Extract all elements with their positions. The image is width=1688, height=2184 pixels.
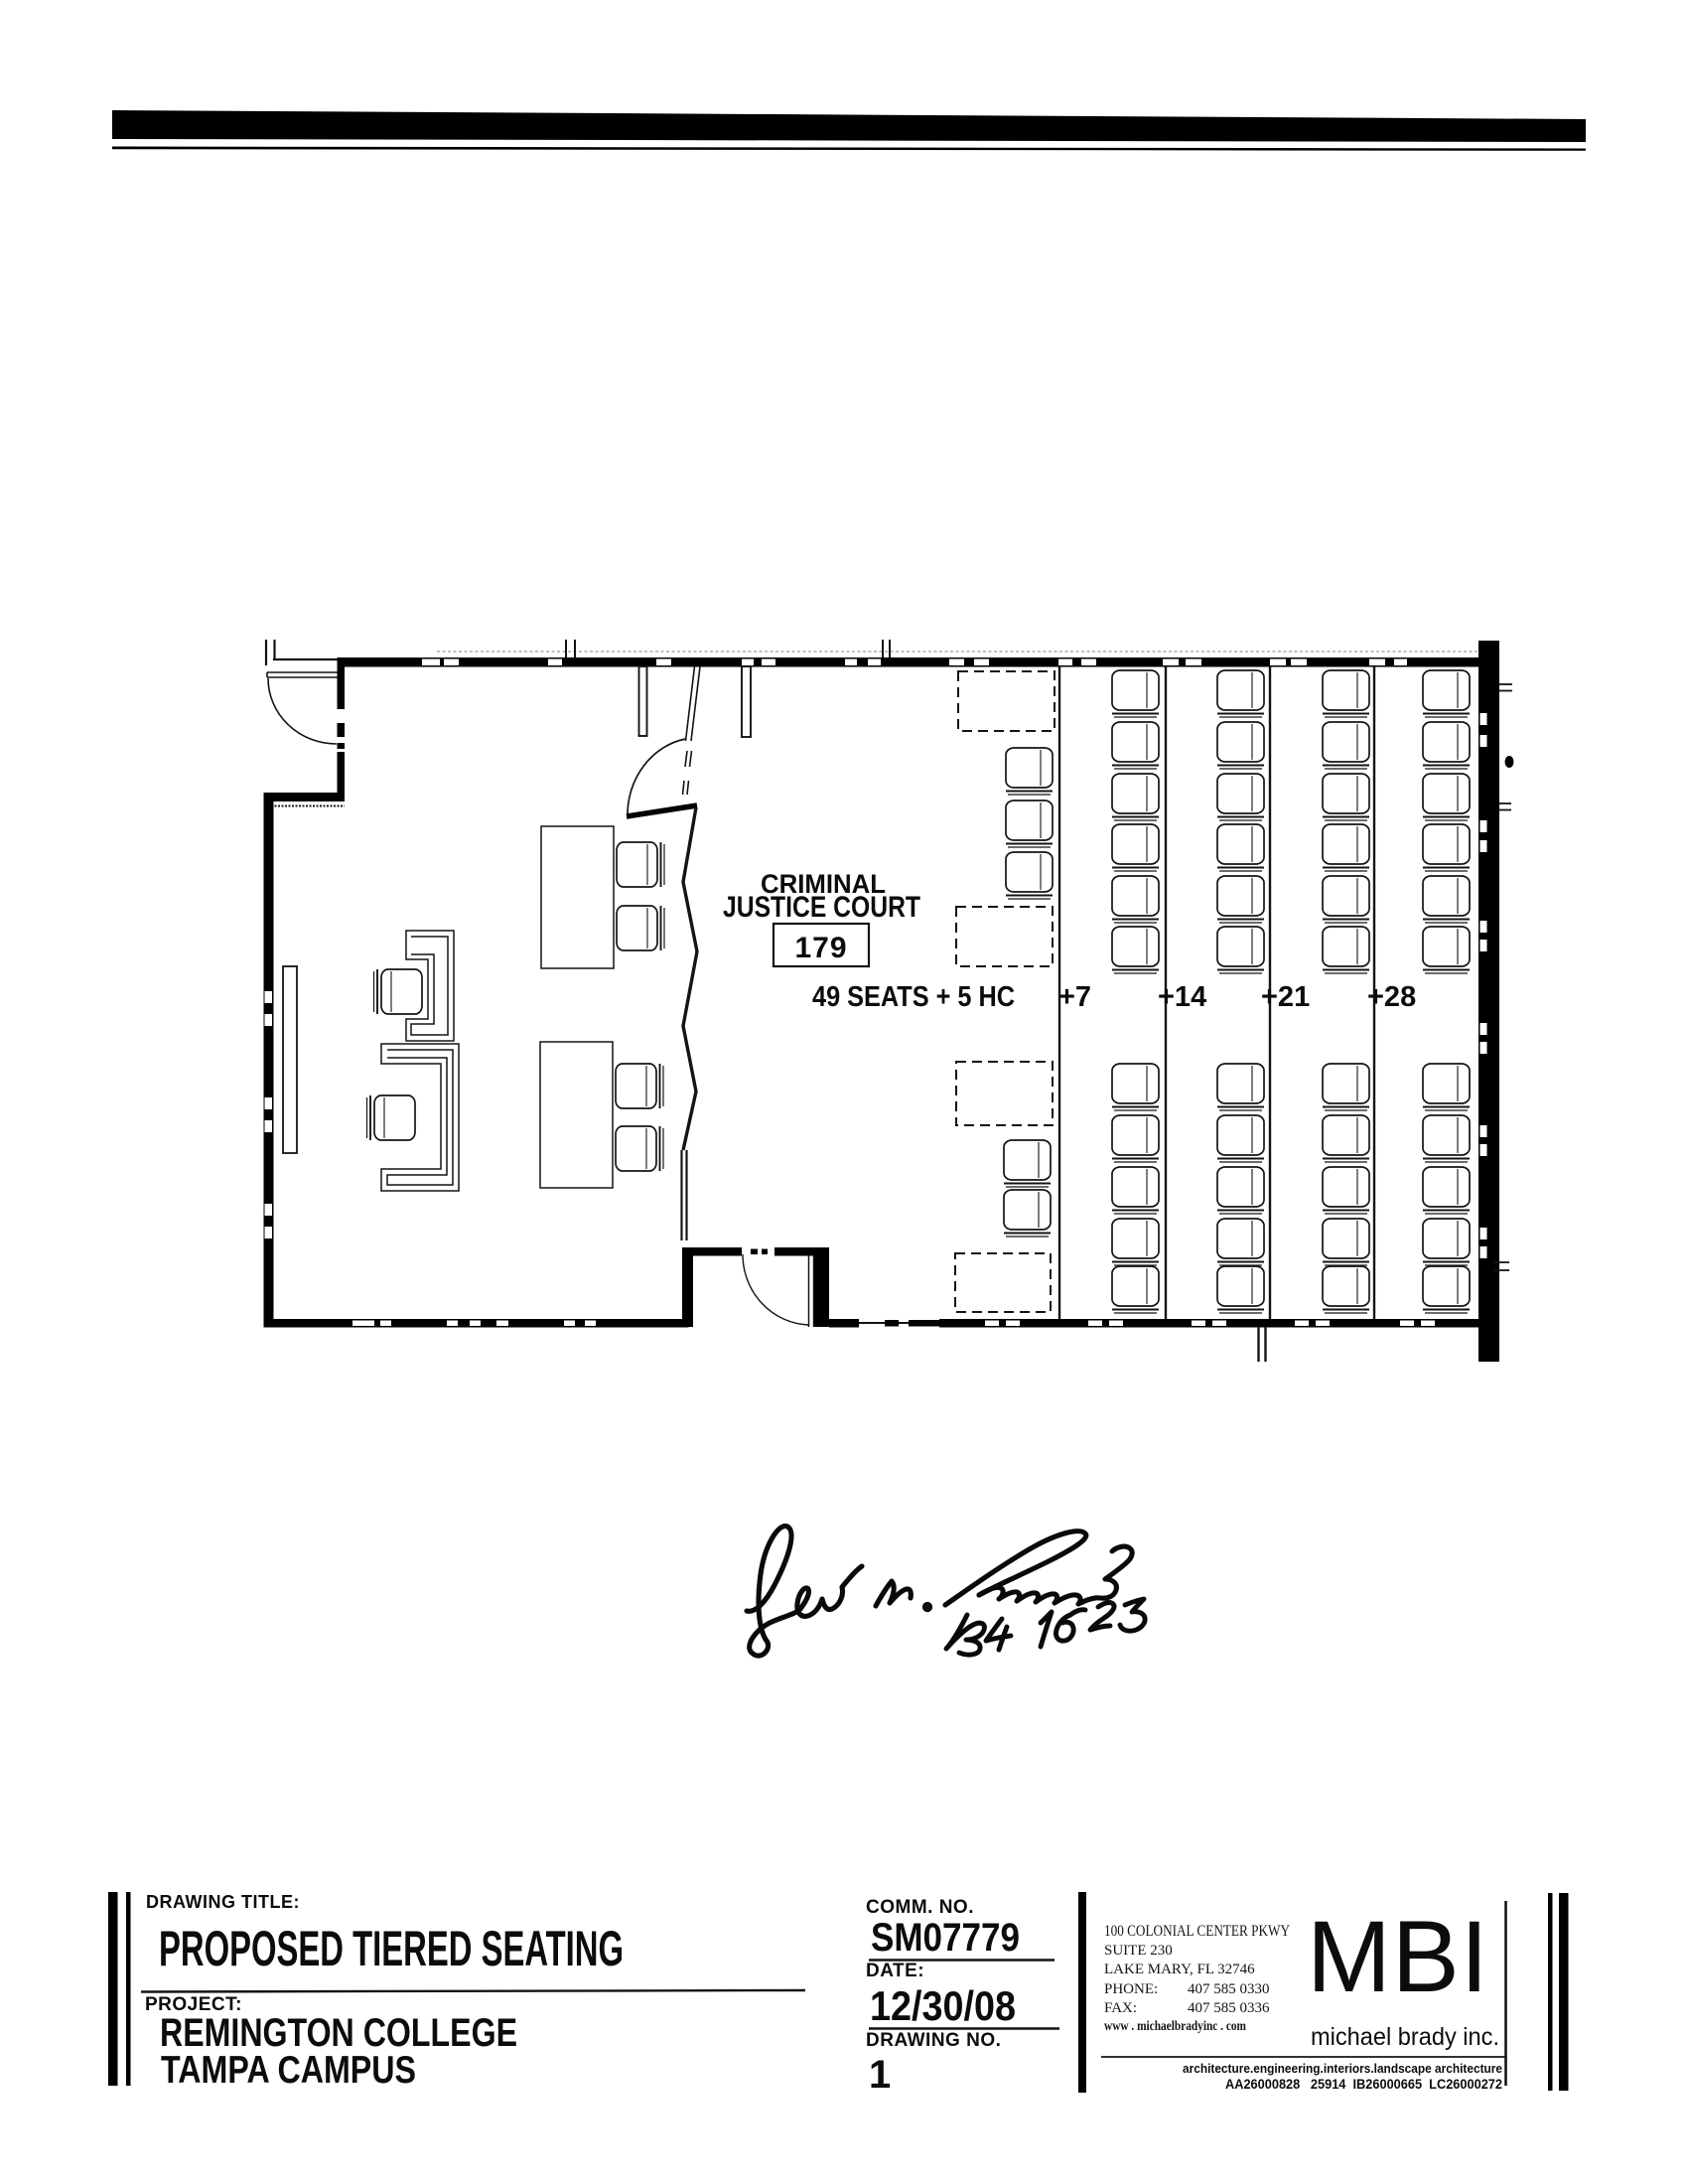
- svg-text:DATE:: DATE:: [866, 1961, 924, 1981]
- svg-text:DRAWING NO.: DRAWING NO.: [866, 2030, 1001, 2051]
- svg-text:architecture.engineering.inter: architecture.engineering.interiors.lands…: [1183, 2061, 1502, 2076]
- svg-text:www . michaelbradyinc . com: www . michaelbradyinc . com: [1104, 2019, 1246, 2034]
- svg-text:407 585 0336: 407 585 0336: [1188, 2000, 1270, 2016]
- svg-text:JUSTICE COURT: JUSTICE COURT: [723, 891, 920, 924]
- svg-text:michael brady inc.: michael brady inc.: [1311, 2023, 1499, 2051]
- svg-text:COMM. NO.: COMM. NO.: [866, 1897, 974, 1918]
- svg-text:12/30/08: 12/30/08: [870, 1982, 1016, 2029]
- svg-text:+21: +21: [1261, 981, 1310, 1013]
- svg-text:407 585 0330: 407 585 0330: [1188, 1981, 1270, 1997]
- svg-text:AA26000828 25914 IB26000665: AA26000828 25914 IB26000665 LC26000272: [1225, 2077, 1502, 2092]
- svg-text:+28: +28: [1367, 981, 1416, 1013]
- svg-text:DRAWING TITLE:: DRAWING TITLE:: [146, 1892, 300, 1912]
- svg-text:1: 1: [869, 2053, 891, 2097]
- svg-text:49 SEATS + 5 HC: 49 SEATS + 5 HC: [812, 981, 1015, 1013]
- svg-text:179: 179: [794, 932, 847, 964]
- svg-text:SM07779: SM07779: [871, 1916, 1020, 1960]
- svg-text:TAMPA CAMPUS: TAMPA CAMPUS: [161, 2049, 416, 2092]
- svg-text:+14: +14: [1158, 981, 1206, 1013]
- svg-text:PROPOSED TIERED SEATING: PROPOSED TIERED SEATING: [159, 1921, 624, 1976]
- svg-text:FAX:: FAX:: [1104, 2000, 1137, 2016]
- svg-text:MBI: MBI: [1307, 1900, 1491, 2013]
- svg-text:LAKE MARY, FL 32746: LAKE MARY, FL 32746: [1104, 1962, 1255, 1977]
- svg-text:100 COLONIAL CENTER PKWY: 100 COLONIAL CENTER PKWY: [1104, 1923, 1290, 1940]
- svg-text:+7: +7: [1058, 981, 1091, 1013]
- svg-text:PHONE:: PHONE:: [1104, 1981, 1158, 1997]
- svg-text:SUITE 230: SUITE 230: [1104, 1943, 1173, 1959]
